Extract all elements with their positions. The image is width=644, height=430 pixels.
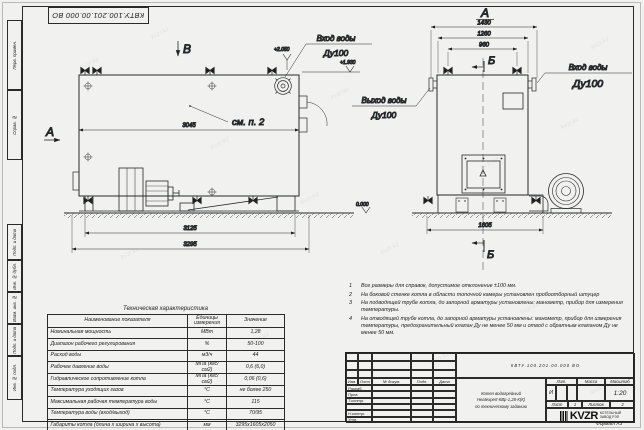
kvzr-logo-text: KVZR <box>570 410 598 422</box>
title-block: Изм. Лист № докум. Подп. Дата Разраб. Пр… <box>345 352 634 422</box>
col-header: Единицы измерения <box>188 315 227 328</box>
col-header: Наименование показателя <box>48 315 188 328</box>
table-row: Диапазон рабочего регулирования%50-100 <box>48 339 285 350</box>
margin-box: Инв. № дубл. <box>7 260 22 292</box>
scale-value: 1:20 <box>605 385 635 401</box>
note-text: На отводящей трубе котла, до запорной ар… <box>361 316 632 337</box>
table-row: Гидравлическое сопротивление котлаМПа (к… <box>48 374 285 386</box>
margin-label: Подп. и дата <box>12 327 17 354</box>
note-item: 1 Все размеры для справок, допустимое от… <box>349 283 632 290</box>
param-name: Температура уходящих газов <box>48 385 188 396</box>
doc-number: КВТУ.100.201.00.000 ВО <box>511 363 580 368</box>
param-name: Температура воды (вход/выход) <box>48 408 188 419</box>
note-number: 4 <box>349 316 356 337</box>
note-item: 4 На отводящей трубе котла, до запорной … <box>349 316 632 337</box>
margin-label: Инв. № дубл. <box>12 263 17 290</box>
note-number: 1 <box>349 283 356 290</box>
note-text: На подводящей трубе котла, до запорной а… <box>361 300 632 314</box>
param-value: 70/95 <box>227 408 285 419</box>
sign-row-label: Утв. <box>346 417 372 423</box>
company-name-line: ЗАВОД РЭП <box>600 416 621 420</box>
margin-label: Взам. инв. № <box>12 295 17 322</box>
tech-table: Техническая характеристика Наименование … <box>47 304 284 430</box>
param-unit: °С <box>188 385 227 396</box>
tech-table-title: Техническая характеристика <box>47 304 284 314</box>
col-docnum: № докум. <box>372 378 411 385</box>
product-line: по техническому заданию <box>475 404 527 411</box>
change-record-grid <box>346 353 456 378</box>
margin-label: Справ. № <box>12 115 17 135</box>
col-list: Лист <box>358 378 372 385</box>
margin-label: Инв. № подл. <box>12 364 17 391</box>
param-value: 115 <box>227 397 285 408</box>
scale-header: Масштаб <box>605 378 635 385</box>
lit-cell-2 <box>556 385 566 401</box>
col-header: Значение <box>227 315 285 328</box>
param-name: Гидравлическое сопротивление котла <box>48 374 188 386</box>
note-text: Все размеры для справок, допустимое откл… <box>361 283 632 290</box>
margin-label: Перв. примен. <box>12 41 17 70</box>
margin-box: Инв. № подл. <box>7 356 22 400</box>
note-number: 2 <box>349 292 356 299</box>
param-value: 44 <box>227 350 285 361</box>
param-unit: м3/ч <box>188 350 227 361</box>
note-item: 2 На боковой стенке котла в области топо… <box>349 292 632 299</box>
sheet-label: Лист <box>546 401 568 408</box>
format-label: Формат А3 <box>596 422 622 427</box>
param-value: не более 250 <box>227 385 285 396</box>
table-row: Рабочее давление водыМПа (кгс/см2)0,6 (6… <box>48 362 285 374</box>
param-unit: % <box>188 339 227 350</box>
table-row: Расход водым3/ч44 <box>48 350 285 361</box>
param-name: Рабочее давление воды <box>48 362 188 374</box>
param-unit: МПа (кгс/см2) <box>188 362 227 374</box>
note-text: На боковой стенке котла в области топочн… <box>361 292 632 299</box>
lit-cell-3 <box>567 385 577 401</box>
param-name: Расход воды <box>48 350 188 361</box>
param-unit: мм <box>188 420 227 430</box>
col-date: Дата <box>433 378 456 385</box>
note-item: 3 На подводящей трубе котла, до запорной… <box>349 300 632 314</box>
param-name: Габариты котла (длина х ширина х высота) <box>48 420 188 430</box>
margin-box: Подп. и дата <box>7 224 22 260</box>
table-header-row: Наименование показателя Единицы измерени… <box>48 315 285 328</box>
note-number: 3 <box>349 300 356 314</box>
param-name: Максимальная рабочая температура воды <box>48 397 188 408</box>
change-header-row: Изм. Лист № докум. Подп. Дата <box>346 378 456 385</box>
sheet-value: 1 <box>568 401 582 408</box>
mass-header: Масса <box>577 378 605 385</box>
company-name: КОТЕЛЬНЫЙ ЗАВОД РЭП <box>600 412 621 420</box>
param-name: Номинальная мощность <box>48 328 188 339</box>
param-unit: °С <box>188 397 227 408</box>
col-sign: Подп. <box>411 378 433 385</box>
param-value: 50-100 <box>227 339 285 350</box>
margin-box: Справ. № <box>7 90 22 160</box>
margin-box: Подп. и дата <box>7 324 22 356</box>
company-cell: KVZR КОТЕЛЬНЫЙ ЗАВОД РЭП <box>546 408 635 423</box>
margin-box: Перв. примен. <box>7 20 22 90</box>
col-izm: Изм. <box>346 378 358 385</box>
param-unit: °С <box>188 408 227 419</box>
lit-header: Лит. <box>546 378 577 385</box>
mass-value <box>577 385 605 401</box>
table-row: Габариты котла (длина х ширина х высота)… <box>48 420 285 430</box>
margin-box: Взам. инв. № <box>7 292 22 324</box>
table-row: Номинальная мощностьМВт1,28 <box>48 328 285 339</box>
sheets-label: Листов <box>582 401 610 408</box>
doc-stamp-text: КВТУ.100.201.00.000 ВО <box>52 11 144 20</box>
table-row: Температура воды (вход/выход)°С70/95 <box>48 408 285 419</box>
notes: 1 Все размеры для справок, допустимое от… <box>349 283 632 339</box>
param-value: 0,6 (6,0) <box>227 362 285 374</box>
sheets-value: 2 <box>610 401 635 408</box>
product-name-cell: Котел водогрейный Heatexpert-КВр-1,28-К(… <box>456 378 546 423</box>
table-row: Максимальная рабочая температура воды°С1… <box>48 397 285 408</box>
drawing-sheet: kvzr.kz kvzr.kz kvzr.kz kvzr.kz kvzr.kz … <box>0 0 644 430</box>
margin-label: Подп. и дата <box>12 229 17 256</box>
doc-stamp: КВТУ.100.201.00.000 ВО <box>48 7 149 24</box>
param-unit: МВт <box>188 328 227 339</box>
param-name: Диапазон рабочего регулирования <box>48 339 188 350</box>
signature-rows: Разраб. Пров. Т.контр. Н.контр. Утв. <box>346 385 456 423</box>
param-value: 0,06 (0,6) <box>227 374 285 386</box>
kvzr-logo-mark-icon <box>560 411 568 421</box>
param-unit: МПа (кгс/см2) <box>188 374 227 386</box>
lit-value: И <box>546 385 556 401</box>
doc-number-cell: КВТУ.100.201.00.000 ВО <box>456 353 635 378</box>
table-row: Температура уходящих газов°Сне более 250 <box>48 385 285 396</box>
param-value: 3295х1605х2050 <box>227 420 285 430</box>
param-value: 1,28 <box>227 328 285 339</box>
